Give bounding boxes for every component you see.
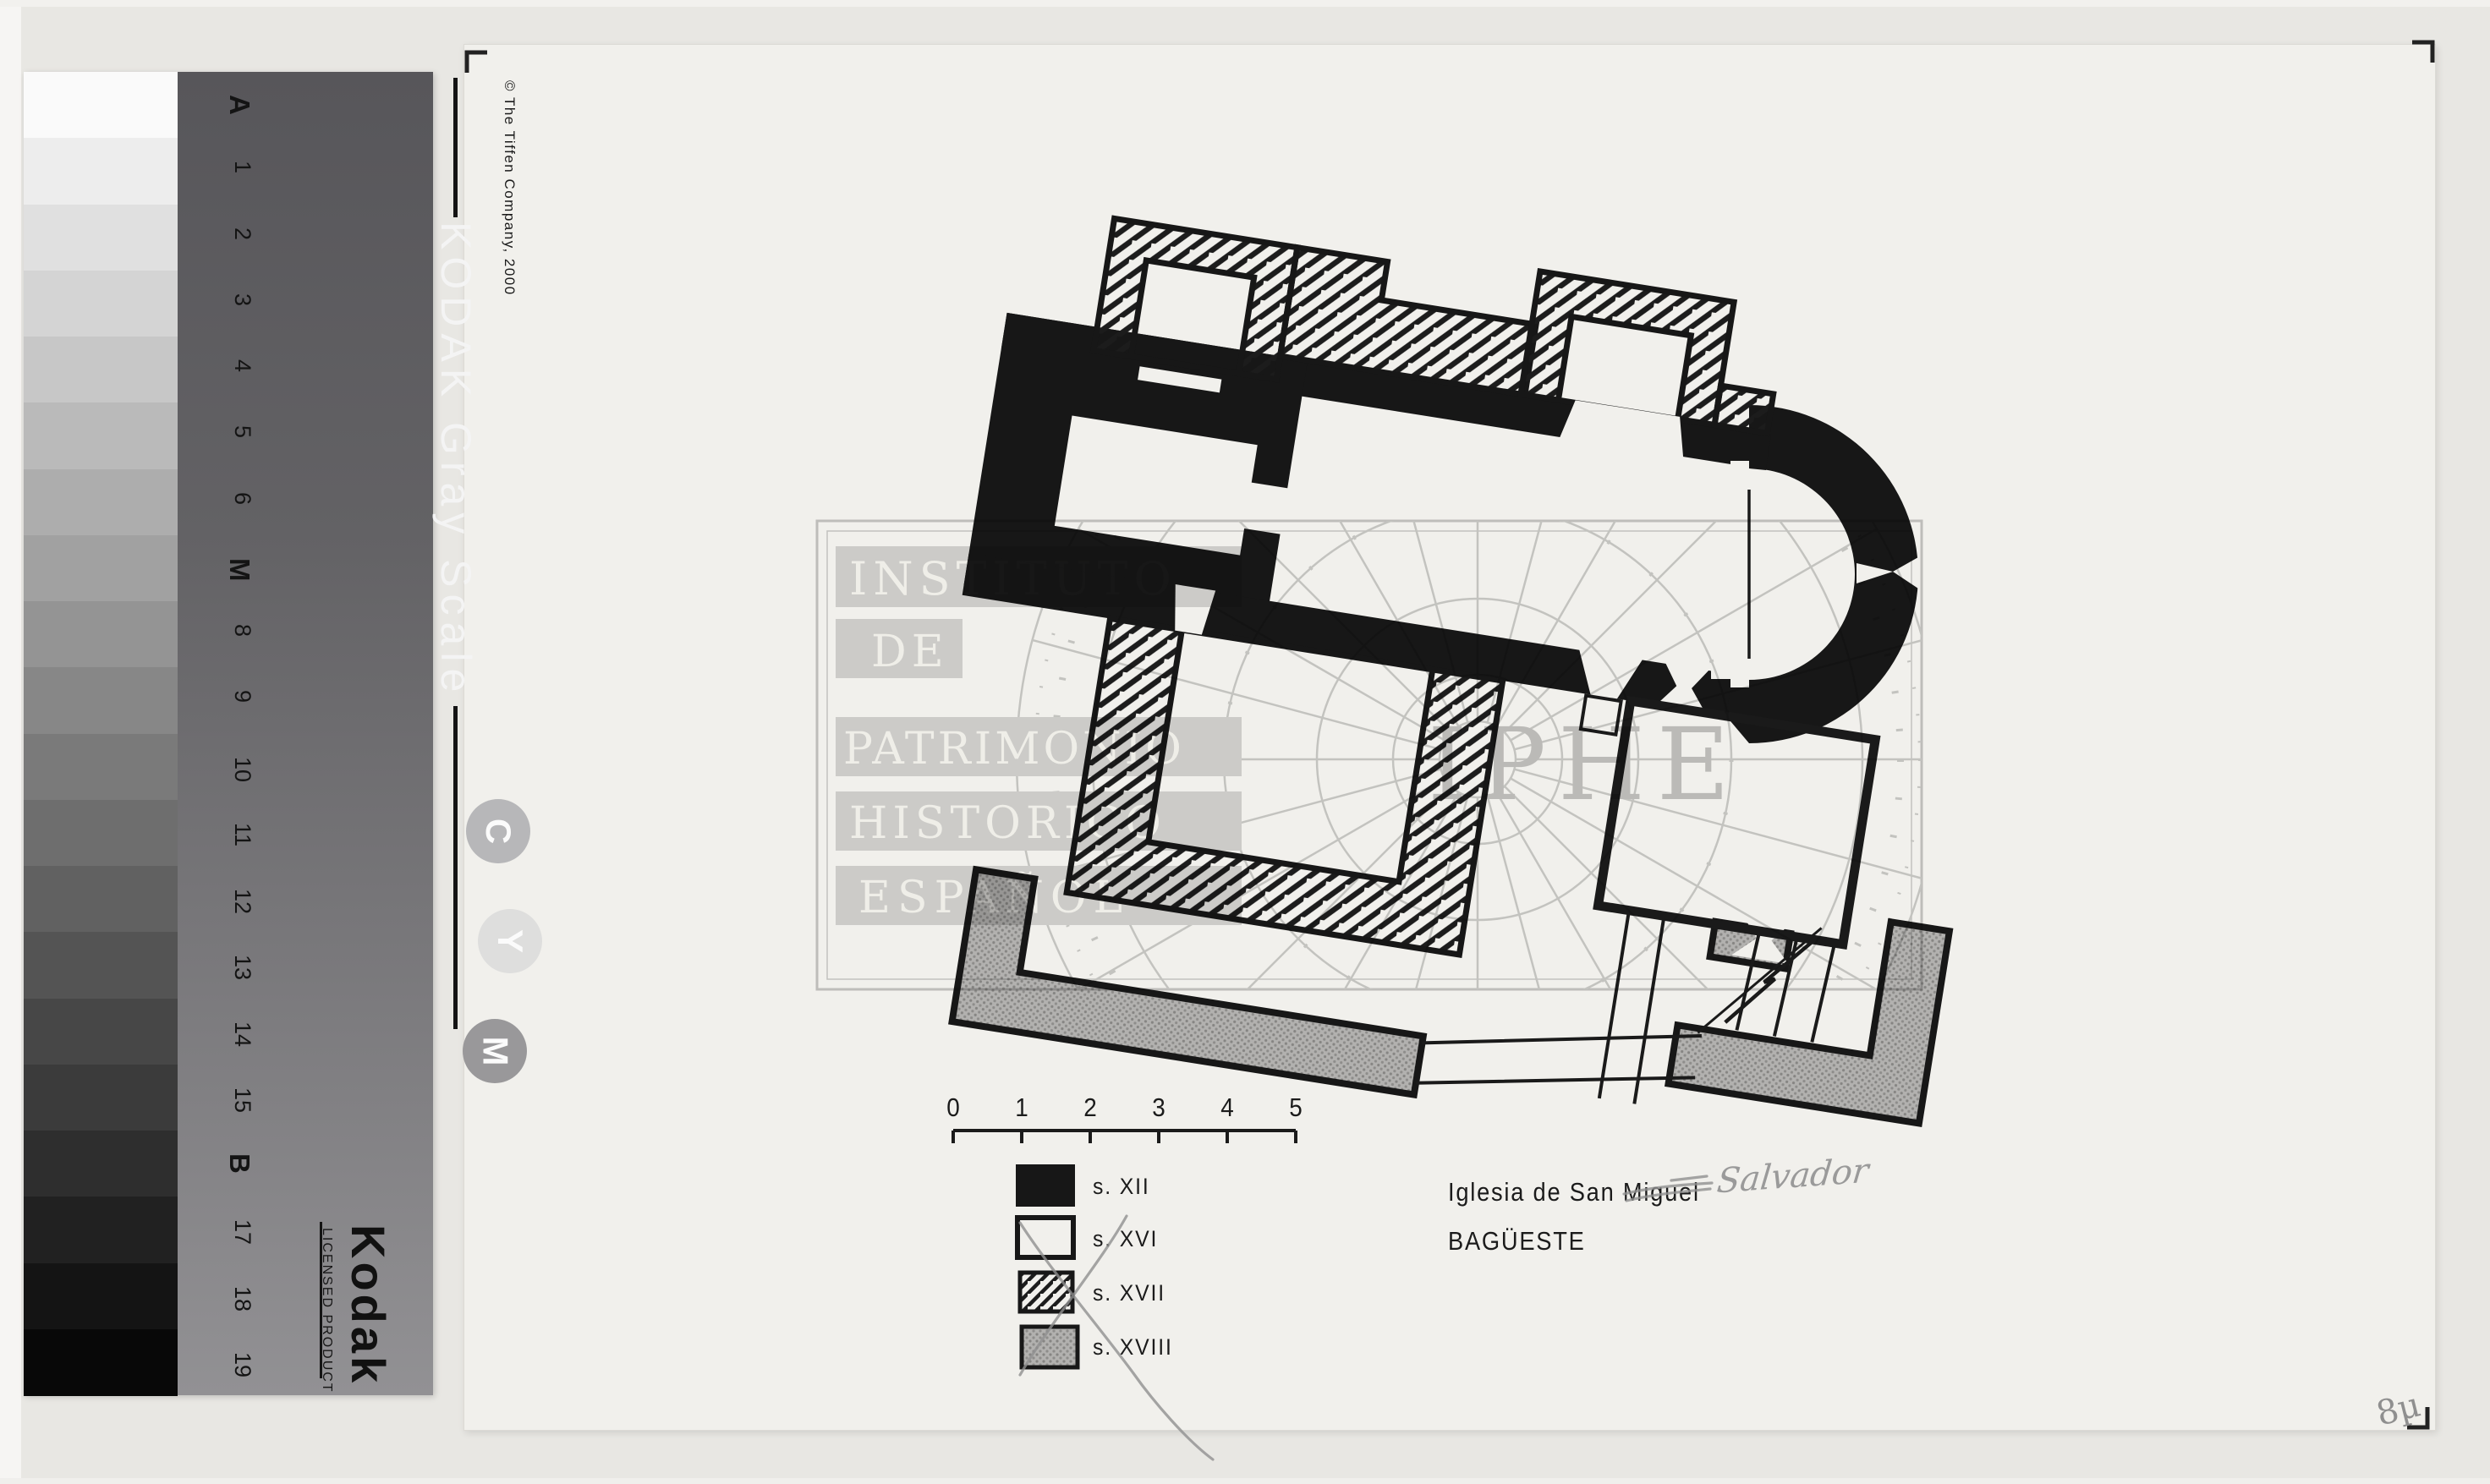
scale-tick-4: 4 xyxy=(1220,1092,1234,1123)
kodak-step-label-B: B xyxy=(226,1153,254,1174)
yellow-ink-circle: Y xyxy=(478,909,542,973)
kodak-step-label-2: 2 xyxy=(231,227,254,240)
kodak-license-text: LICENSED PRODUCT xyxy=(319,1228,334,1394)
kodak-label-band: A123456M89101112131415B171819 KODAK Gray… xyxy=(178,72,433,1395)
gray-patch-B xyxy=(24,1131,178,1197)
gray-patch-column xyxy=(24,72,178,1395)
kodak-step-label-13: 13 xyxy=(231,955,254,980)
gray-patch-4 xyxy=(24,337,178,403)
gray-patch-10 xyxy=(24,734,178,801)
gray-patch-17 xyxy=(24,1197,178,1263)
gray-patch-2 xyxy=(24,205,178,271)
legend-label-s17: s. XVII xyxy=(1093,1280,1165,1306)
rule-line xyxy=(453,78,458,217)
gray-patch-14 xyxy=(24,999,178,1065)
gray-patch-19 xyxy=(24,1329,178,1396)
cyan-ink-circle: C xyxy=(466,799,530,863)
gray-patch-18 xyxy=(24,1263,178,1330)
gray-patch-3 xyxy=(24,271,178,337)
gray-patch-5 xyxy=(24,402,178,469)
kodak-step-label-12: 12 xyxy=(231,889,254,914)
plan-title: Iglesia de San Miguel xyxy=(1448,1177,1700,1207)
gray-patch-8 xyxy=(24,601,178,668)
kodak-gray-scale-strip: A123456M89101112131415B171819 KODAK Gray… xyxy=(24,72,433,1395)
gray-patch-13 xyxy=(24,932,178,999)
gray-patch-15 xyxy=(24,1065,178,1131)
scale-tick-3: 3 xyxy=(1152,1092,1165,1123)
kodak-step-label-5: 5 xyxy=(231,425,254,438)
scale-tick-5: 5 xyxy=(1289,1092,1303,1123)
scale-tick-1: 1 xyxy=(1015,1092,1028,1123)
gray-patch-12 xyxy=(24,866,178,933)
legend-label-s12: s. XII xyxy=(1093,1174,1150,1200)
kodak-step-label-18: 18 xyxy=(231,1286,254,1312)
kodak-step-label-M: M xyxy=(226,558,254,582)
rule-line xyxy=(453,706,458,1029)
drawing-sheet xyxy=(463,44,2436,1431)
gray-patch-6 xyxy=(24,469,178,536)
scanner-edge xyxy=(0,0,21,1484)
kodak-step-label-6: 6 xyxy=(231,492,254,505)
kodak-step-label-17: 17 xyxy=(231,1219,254,1245)
scale-tick-0: 0 xyxy=(946,1092,960,1123)
kodak-step-label-A: A xyxy=(226,95,254,115)
kodak-step-label-11: 11 xyxy=(231,823,254,846)
kodak-copyright-text: © The Tiffen Company, 2000 xyxy=(501,80,518,296)
kodak-step-label-1: 1 xyxy=(231,161,254,173)
kodak-step-label-14: 14 xyxy=(231,1021,254,1047)
scanned-archive-sheet: A123456M89101112131415B171819 KODAK Gray… xyxy=(0,0,2490,1484)
kodak-step-label-19: 19 xyxy=(231,1352,254,1377)
kodak-step-label-15: 15 xyxy=(231,1087,254,1113)
kodak-step-label-10: 10 xyxy=(231,757,254,782)
legend-label-s18: s. XVIII xyxy=(1093,1334,1173,1361)
kodak-step-label-4: 4 xyxy=(231,359,254,372)
kodak-title-text: KODAK Gray Scale xyxy=(431,222,480,698)
gray-patch-11 xyxy=(24,800,178,867)
scale-tick-2: 2 xyxy=(1083,1092,1097,1123)
scanner-edge-top xyxy=(0,0,2490,7)
scanner-edge-bottom xyxy=(0,1478,2490,1484)
gray-patch-A xyxy=(24,72,178,139)
kodak-brand-text: Kodak xyxy=(341,1224,396,1386)
gray-patch-9 xyxy=(24,667,178,734)
kodak-step-label-9: 9 xyxy=(231,690,254,703)
kodak-step-label-3: 3 xyxy=(231,293,254,306)
kodak-step-label-8: 8 xyxy=(231,624,254,637)
magenta-ink-circle: M xyxy=(463,1019,527,1083)
plan-subtitle: BAGÜESTE xyxy=(1448,1226,1586,1257)
gray-patch-M xyxy=(24,535,178,602)
legend-label-s16: s. XVI xyxy=(1093,1226,1158,1252)
gray-patch-1 xyxy=(24,138,178,205)
